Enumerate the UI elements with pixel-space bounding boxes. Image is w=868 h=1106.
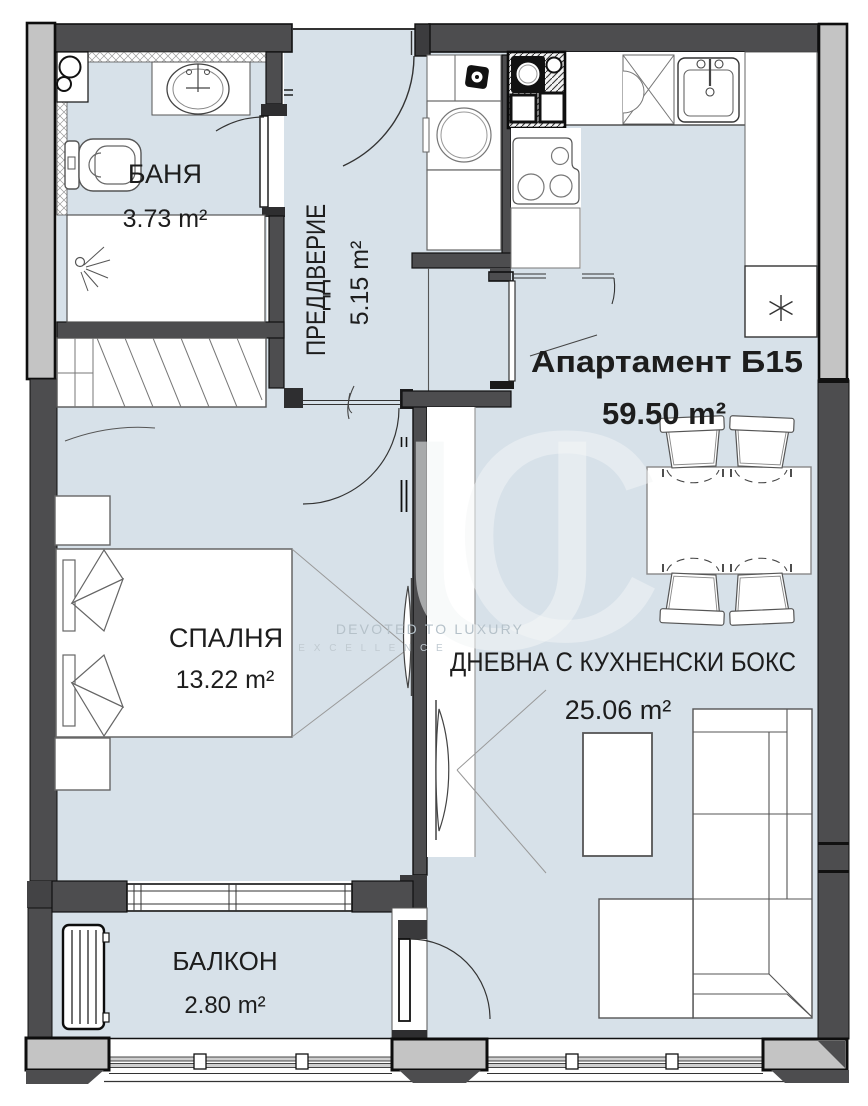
svg-text:2.80 m²: 2.80 m²	[184, 992, 265, 1019]
svg-text:5.15 m²: 5.15 m²	[346, 241, 374, 326]
svg-text:СПАЛНЯ: СПАЛНЯ	[169, 623, 283, 653]
svg-text:БАЛКОН: БАЛКОН	[172, 946, 277, 976]
svg-text:13.22 m²: 13.22 m²	[176, 666, 275, 694]
svg-text:3.73 m²: 3.73 m²	[123, 205, 208, 233]
svg-text:E X C E L L E N C E: E X C E L L E N C E	[298, 643, 445, 654]
svg-text:ПРЕДДВЕРИЕ: ПРЕДДВЕРИЕ	[301, 204, 331, 356]
svg-text:C: C	[450, 368, 667, 704]
svg-text:БАНЯ: БАНЯ	[128, 159, 202, 189]
svg-text:DEVOTED TO LUXURY: DEVOTED TO LUXURY	[336, 621, 524, 637]
